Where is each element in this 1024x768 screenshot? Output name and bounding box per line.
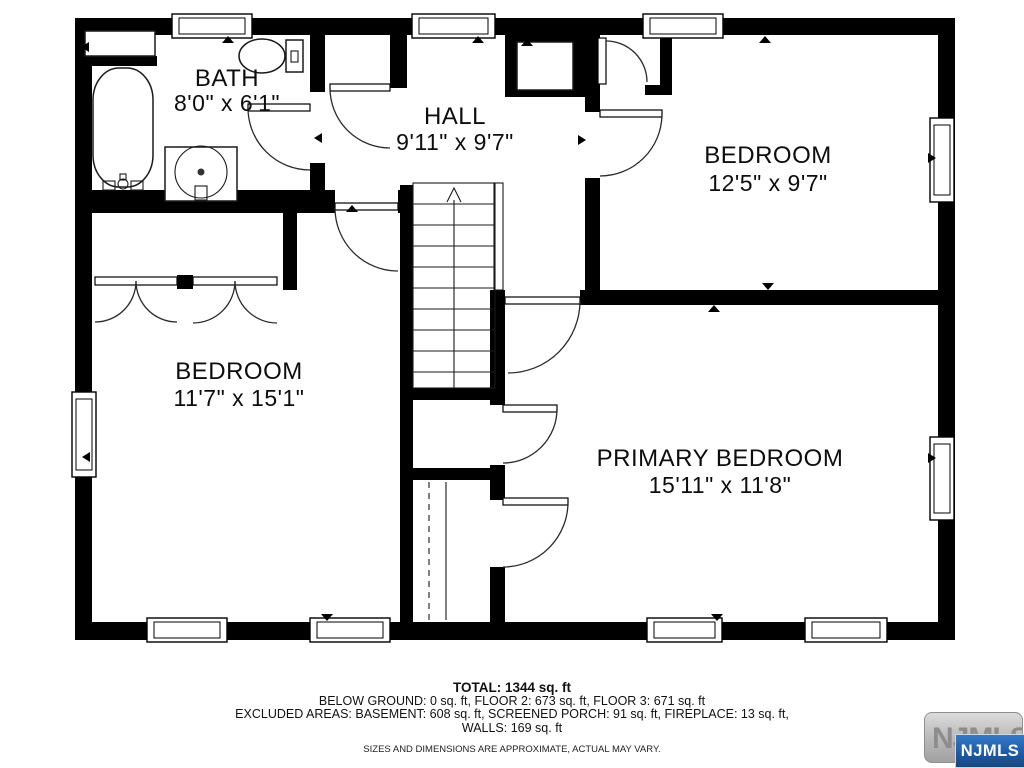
room-dims-bedroom-right: 12'5" x 9'7": [708, 170, 827, 196]
njmls-badge-text: NJMLS: [961, 742, 1019, 761]
stair-left-wall: [400, 185, 413, 622]
window-top-2: [412, 14, 495, 38]
stair-up-arrow-icon: [447, 188, 461, 202]
bathtub: [93, 68, 153, 190]
window-top-1: [172, 14, 252, 38]
vanity-sink: [165, 146, 237, 201]
window-left-1: [72, 392, 96, 477]
marker-down-icon: [762, 283, 774, 290]
summary-walls: WALLS: 169 sq. ft: [0, 722, 1024, 736]
window-right-2: [930, 437, 954, 520]
floor-plan-svg: BATH 8'0" x 6'1" HALL 9'11" x 9'7" BEDRO…: [0, 0, 1024, 768]
window-bottom-1: [147, 618, 227, 642]
area-summary: TOTAL: 1344 sq. ft BELOW GROUND: 0 sq. f…: [0, 681, 1024, 757]
wall-right: [938, 18, 955, 640]
window-right-1: [930, 118, 954, 202]
room-dims-bath: 8'0" x 6'1": [174, 90, 280, 116]
stair-right-wall-c: [490, 567, 505, 622]
room-label-hall: HALL: [424, 103, 486, 130]
summary-total: TOTAL: 1344 sq. ft: [0, 681, 1024, 695]
bedroom-left-closet-doors-a: [95, 277, 177, 322]
window-bottom-4: [805, 618, 887, 642]
bedroom-left-closet-doors-b: [193, 277, 277, 323]
hall-closet-door: [330, 84, 390, 148]
bedroom-closet-bottom-wall: [645, 85, 672, 95]
hall-closet-stub: [390, 35, 407, 88]
understair-divider-a: [400, 388, 497, 400]
interior-walls: [75, 35, 955, 622]
bedroom-right-closet-door: [598, 38, 647, 84]
room-label-bedroom-right: BEDROOM: [704, 142, 832, 169]
summary-excluded: EXCLUDED AREAS: BASEMENT: 608 sq. ft, SC…: [0, 708, 1024, 722]
closet-right-wall: [283, 190, 297, 290]
marker-up-icon: [708, 305, 720, 312]
bedroom-primary-wall: [580, 290, 955, 305]
tub-niche-wall: [85, 56, 157, 66]
window-bottom-2: [310, 618, 390, 642]
room-dims-hall: 9'11" x 9'7": [396, 129, 514, 155]
doors: [95, 38, 662, 567]
chimney-niche: [517, 42, 573, 90]
room-label-bedroom-left: BEDROOM: [175, 358, 303, 385]
bath-hall-wall-upper: [310, 35, 325, 92]
bedroom-right-entry-door: [600, 110, 662, 176]
marker-up-icon: [759, 36, 771, 43]
bedroom-left-entry-door: [335, 203, 398, 271]
wall-left: [75, 18, 92, 640]
staircase: [413, 183, 503, 620]
room-dims-bedroom-left: 11'7" x 15'1": [174, 385, 305, 411]
bath-fixtures: [85, 31, 303, 201]
understair-divider-b: [400, 468, 505, 480]
window-bottom-3: [647, 618, 722, 642]
marker-left-icon: [314, 133, 322, 143]
room-dims-primary-bedroom: 15'11" x 11'8": [649, 472, 792, 498]
summary-floors: BELOW GROUND: 0 sq. ft, FLOOR 2: 673 sq.…: [0, 695, 1024, 709]
hall-bedroom-wall-lower: [585, 178, 600, 305]
primary-closet-door-a: [503, 405, 557, 463]
window-top-3: [643, 14, 723, 38]
primary-closet-door-b: [503, 498, 568, 567]
njmls-badge-logo: NJMLS: [955, 734, 1024, 768]
bath-niche: [85, 31, 155, 56]
direction-markers: [81, 36, 936, 621]
summary-disclaimer: SIZES AND DIMENSIONS ARE APPROXIMATE, AC…: [0, 743, 1024, 757]
marker-right-icon: [578, 135, 586, 145]
primary-bedroom-entry-door: [505, 297, 580, 373]
room-label-primary-bedroom: PRIMARY BEDROOM: [597, 445, 844, 472]
closet-center-post: [177, 275, 193, 289]
room-label-bath: BATH: [195, 65, 259, 92]
